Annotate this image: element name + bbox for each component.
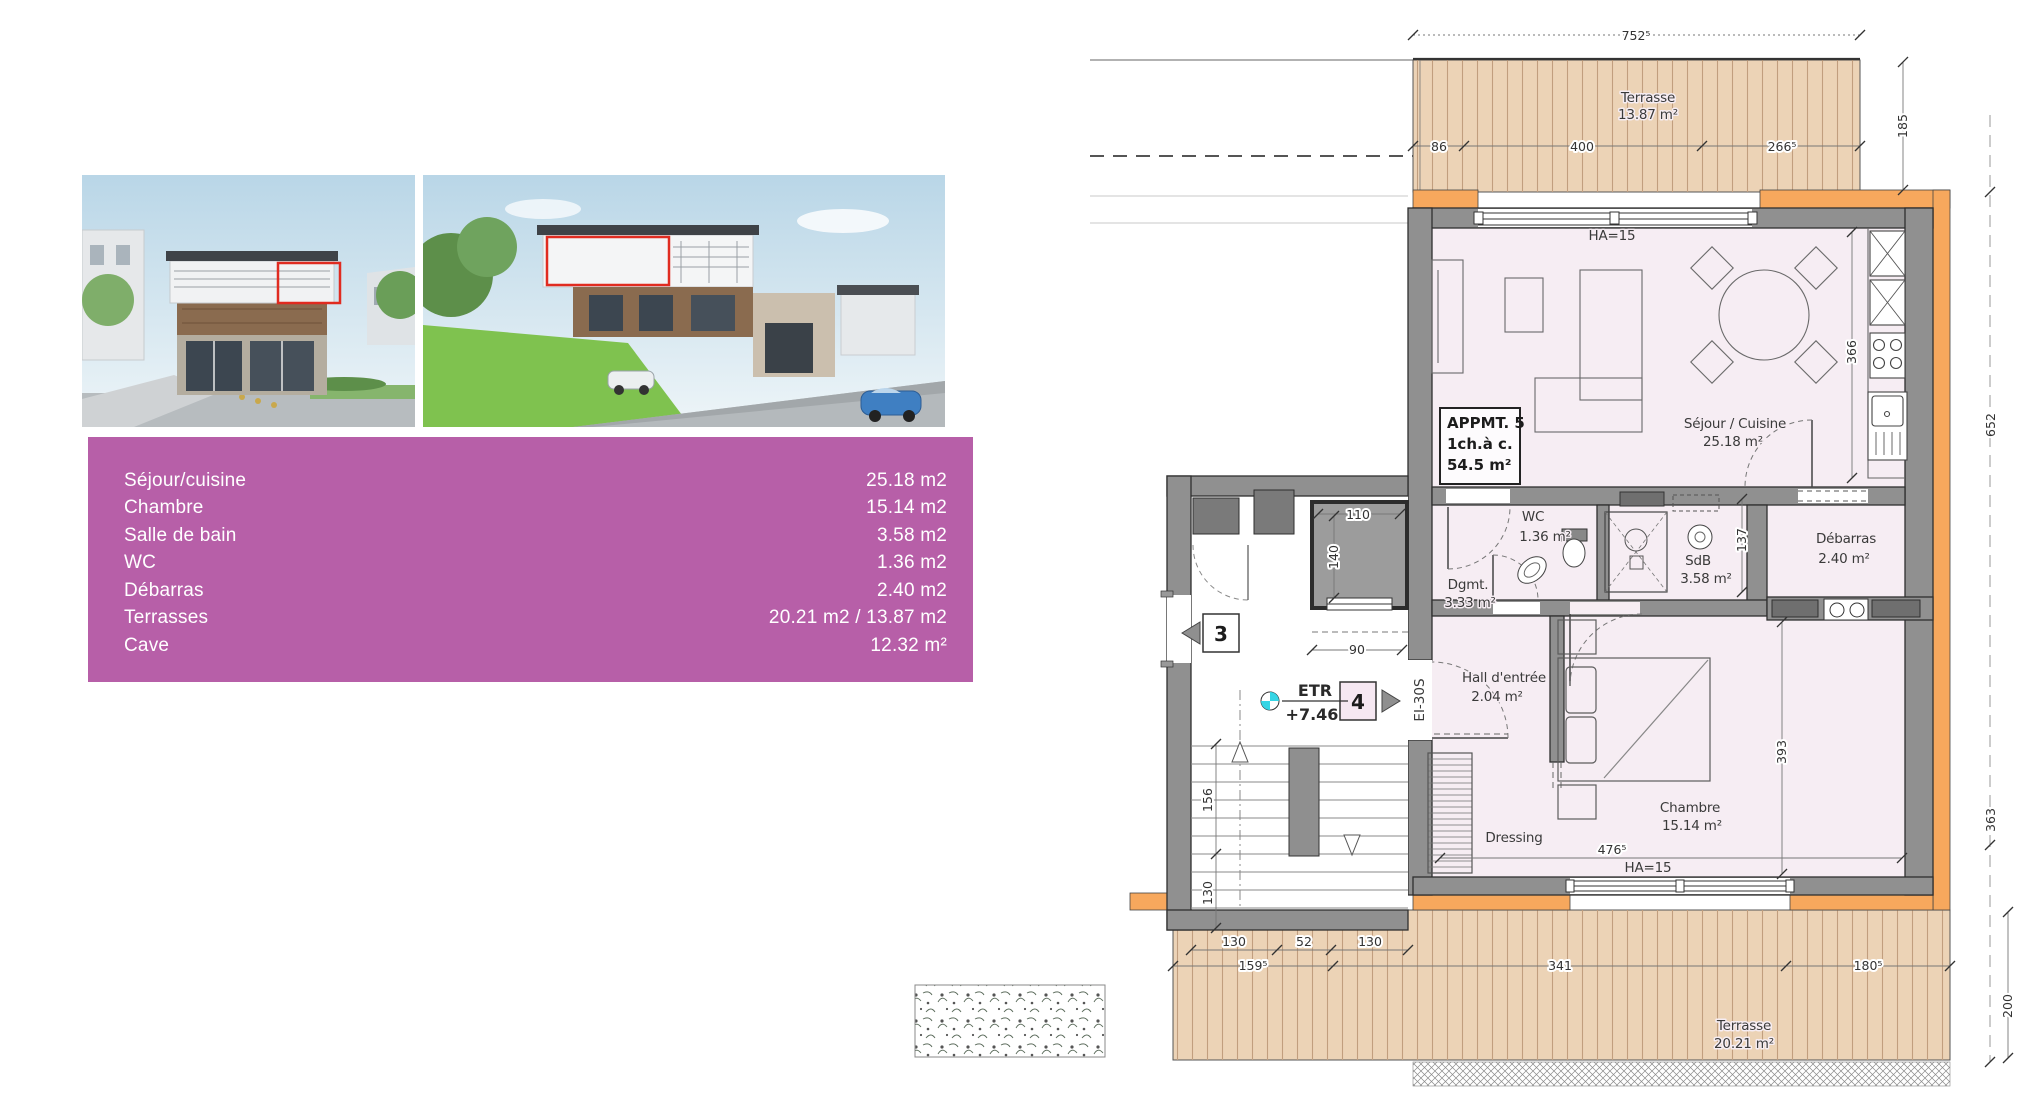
label-dressing: Dressing [1485,830,1542,846]
table-row: Cave12.32 m² [124,632,947,660]
render-photo-rear [423,175,945,427]
dim-stairs-w3: 130 [1358,934,1382,949]
dim-top-a: 86 [1431,139,1447,154]
label-terrace-bottom-area: 20.21 m² [1714,1036,1774,1052]
apartment-id-line3: 54.5 m² [1447,456,1511,474]
render-photo-front-art [82,175,415,427]
dim-elev-h: 140 [1326,545,1341,569]
floor-plan: 752⁵ 86 400 266⁵ 185 366 652 137 110 140… [900,0,2024,1104]
brochure-page: { "colors": { "accent_magenta": "#b75fa8… [0,0,2024,1104]
dim-right-total: 652 [1983,413,1998,437]
dim-top-b: 400 [1570,139,1594,154]
dim-chambre-h: 393 [1774,740,1789,764]
duct-closet [1254,490,1294,534]
unit4-badge-number: 4 [1351,690,1365,714]
table-row: Terrasses20.21 m2 / 13.87 m2 [124,605,947,633]
label-door-rating: EI-30S [1412,678,1428,721]
label-ha-bottom: HA=15 [1625,860,1672,876]
table-row: WC1.36 m2 [124,550,947,578]
label-sdb-area: 3.58 m² [1680,571,1732,587]
label-chambre-area: 15.14 m² [1662,818,1722,834]
label-terrace-top-area: 13.87 m² [1618,107,1678,123]
planter [915,985,1105,1057]
table-row: Séjour/cuisine25.18 m2 [124,467,947,495]
hob [1870,333,1905,378]
dim-bot-right: 200 [2000,994,2015,1018]
label-debarras-area: 2.40 m² [1818,551,1870,567]
dim-stairs-w2: 52 [1296,934,1312,949]
table-row: Chambre15.14 m2 [124,495,947,523]
apartment-id-box: APPMT. 5 1ch.à c. 54.5 m² [1440,408,1525,484]
wardrobe [1428,753,1472,873]
dim-bot-c: 180⁵ [1854,958,1883,973]
stair-core [1161,476,1408,930]
label-sejour-area: 25.18 m² [1703,434,1763,450]
label-dgmt-name: Dgmt. [1448,577,1489,593]
dim-stairs-w1: 130 [1222,934,1246,949]
apartment-id-line2: 1ch.à c. [1447,435,1513,453]
dim-chambre-w: 476⁵ [1598,842,1627,857]
label-debarras-name: Débarras [1816,531,1876,547]
label-terrace-top-name: Terrasse [1620,90,1675,106]
dim-stair-a: 156 [1200,788,1215,812]
label-wc-name: WC [1522,509,1544,525]
table-row: Débarras2.40 m2 [124,577,947,605]
unit3-badge-number: 3 [1214,622,1228,646]
window-top [1474,209,1757,227]
terrace-top [1413,59,1860,192]
label-ha-top: HA=15 [1589,228,1636,244]
dim-right-lower: 363 [1983,808,1998,832]
dim-elev-door: 90 [1349,642,1365,657]
label-wc-area: 1.36 m² [1519,529,1571,545]
label-chambre-name: Chambre [1660,800,1720,816]
duct-closet [1193,498,1239,534]
terrace-bottom [1173,910,1950,1086]
render-photo-rear-art [423,175,945,427]
row-label: Séjour/cuisine [124,470,246,492]
render-photo-front [82,175,415,427]
row-label: Salle de bain [124,525,236,547]
dim-stair-b: 130 [1200,881,1215,905]
kitchen [1868,228,1907,478]
dim-bath-width: 137 [1734,528,1749,552]
apartment-id-line1: APPMT. 5 [1447,414,1525,432]
etr-level: +7.46 [1286,705,1339,724]
label-dgmt-area: 3.33 m² [1444,595,1496,611]
label-hall-area: 2.04 m² [1471,689,1523,705]
label-hall-name: Hall d'entrée [1462,670,1546,686]
areas-table: Séjour/cuisine25.18 m2 Chambre15.14 m2 S… [88,437,973,682]
label-sejour-name: Séjour / Cuisine [1684,416,1786,432]
appliance-niche [1824,599,1868,620]
row-label: Débarras [124,580,204,602]
row-label: Cave [124,635,169,657]
dim-top-c: 266⁵ [1768,139,1797,154]
row-label: WC [124,552,156,574]
dim-kitchen-depth: 366 [1844,340,1859,364]
gravel-strip [1413,1062,1950,1086]
etr-label: ETR [1298,681,1332,700]
door-apt3-opening [1167,595,1191,663]
label-terrace-bottom-name: Terrasse [1716,1018,1771,1034]
dim-right-terrace: 185 [1895,114,1910,138]
dim-bot-b: 341 [1548,958,1572,973]
stair-stringer [1289,748,1319,856]
row-label: Terrasses [124,607,208,629]
label-sdb-name: SdB [1685,553,1711,569]
row-label: Chambre [124,497,204,519]
dim-elev-w: 110 [1346,507,1370,522]
window-bottom [1566,878,1794,894]
dim-bot-a: 159⁵ [1239,958,1268,973]
table-row: Salle de bain3.58 m2 [124,522,947,550]
dim-top-total: 752⁵ [1622,28,1651,43]
